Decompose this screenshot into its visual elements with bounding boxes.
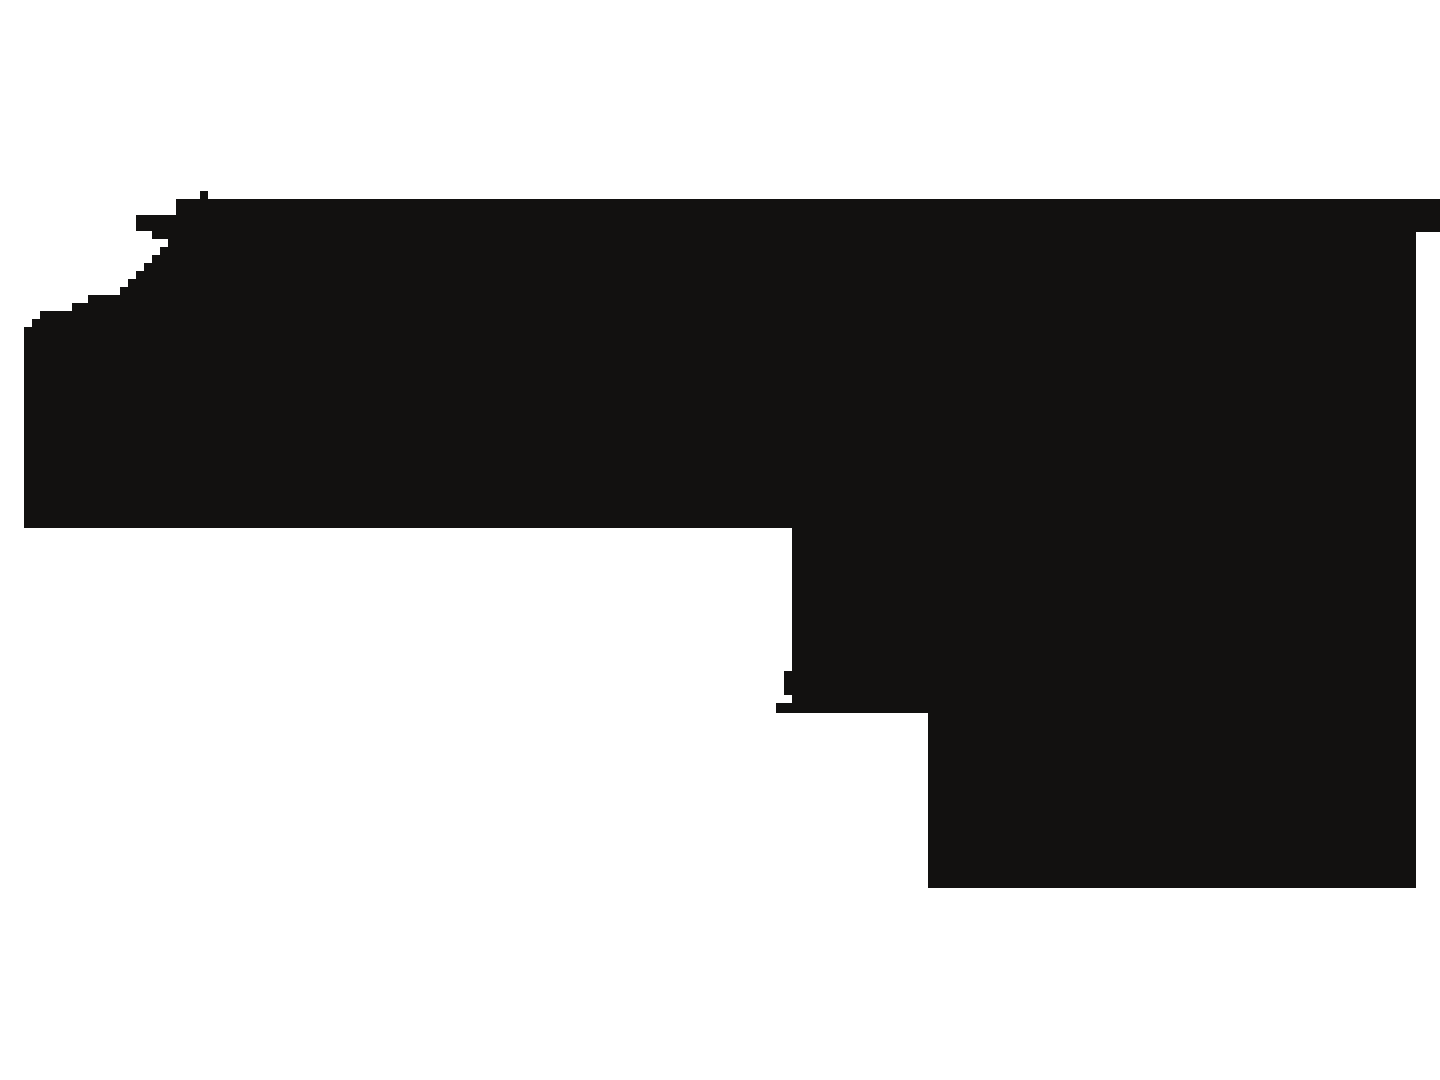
handgun-silhouette-shape: [24, 191, 1440, 888]
silhouette-svg: [0, 0, 1440, 1080]
silhouette-canvas: [0, 0, 1440, 1080]
